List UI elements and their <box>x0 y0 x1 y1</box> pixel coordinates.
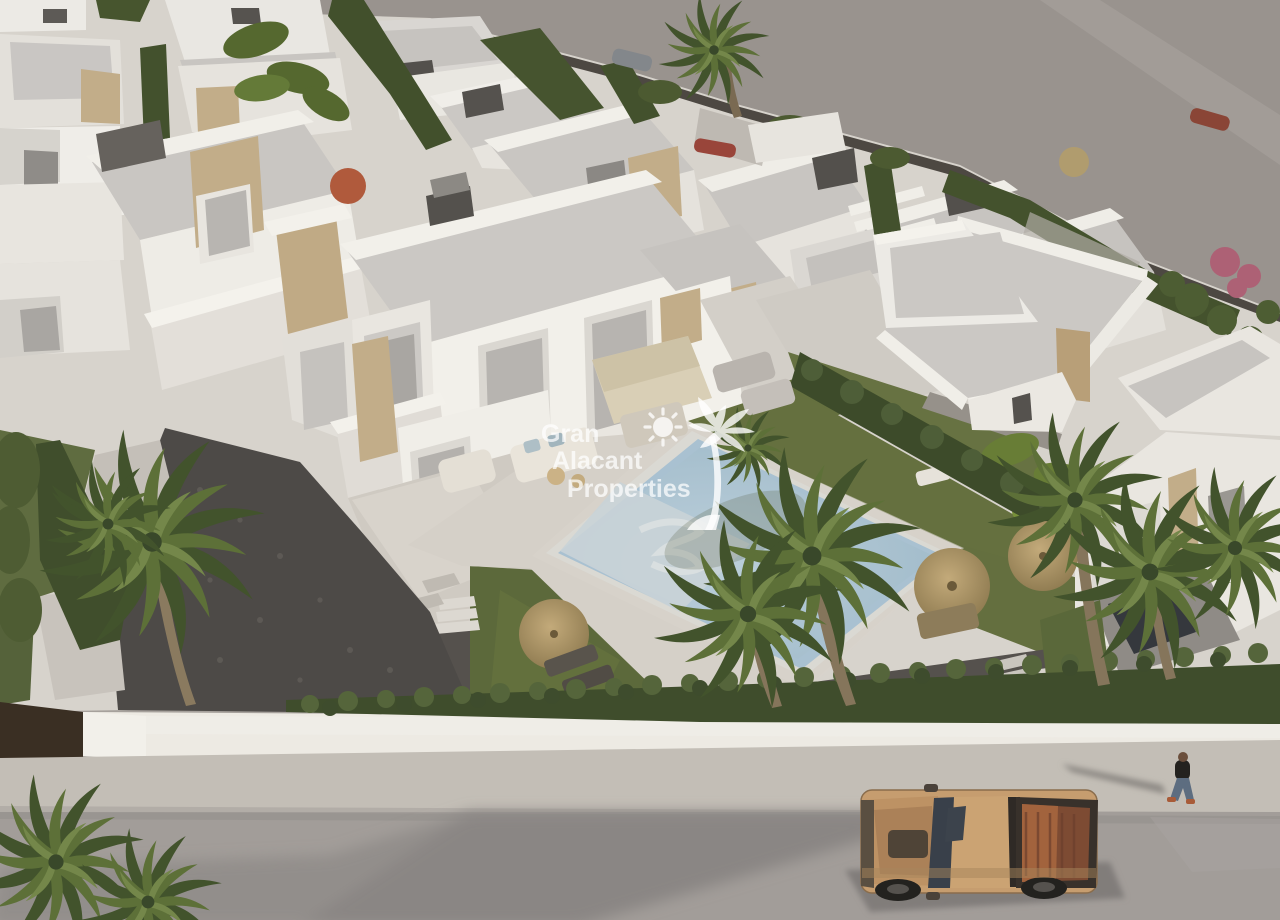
svg-text:Alacant: Alacant <box>552 447 643 475</box>
svg-text:Gran: Gran <box>541 420 599 448</box>
svg-text:Properties: Properties <box>567 475 691 503</box>
